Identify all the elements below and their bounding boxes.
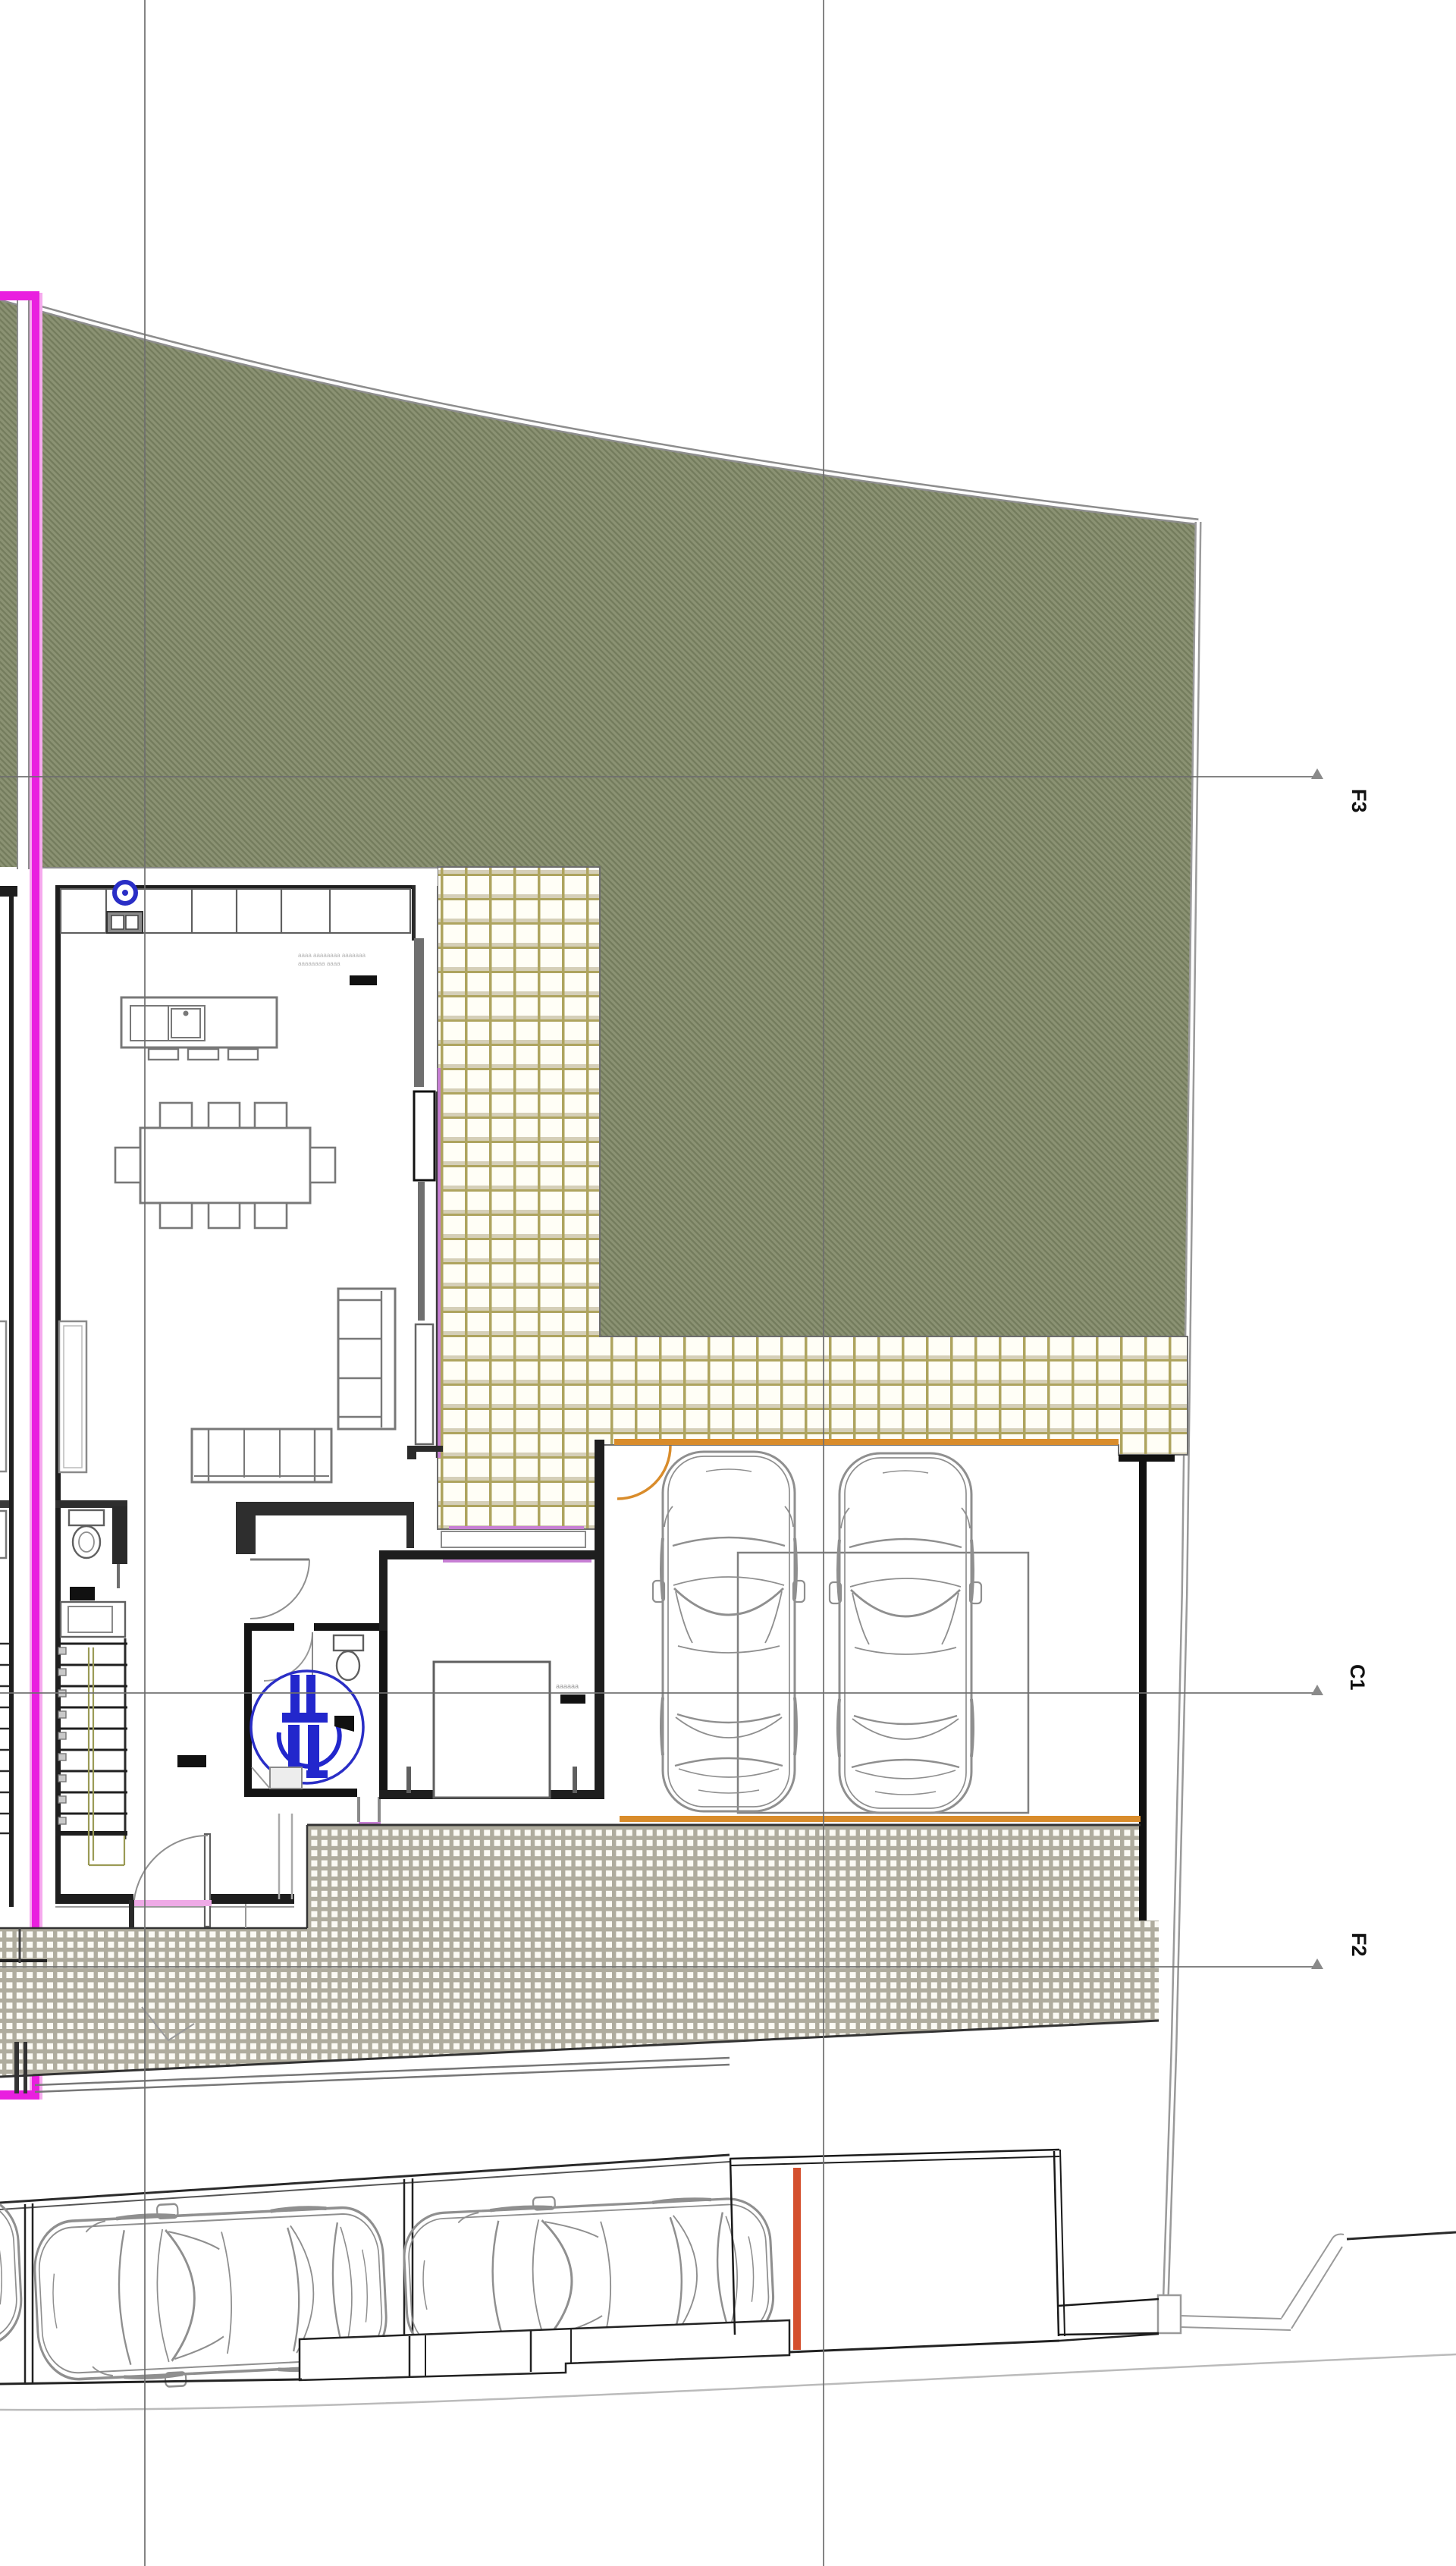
svg-text:F3: F3 [1348,789,1370,813]
svg-text:C1: C1 [1346,1664,1369,1691]
svg-text:aaaaaaaa aaaa: aaaaaaaa aaaa [298,960,340,967]
svg-text:F2: F2 [1348,1933,1370,1957]
svg-text:aaaaaa: aaaaaa [556,1682,579,1690]
svg-text:aaaa aaaaaaaa aaaaaaa: aaaa aaaaaaaa aaaaaaa [298,952,366,959]
